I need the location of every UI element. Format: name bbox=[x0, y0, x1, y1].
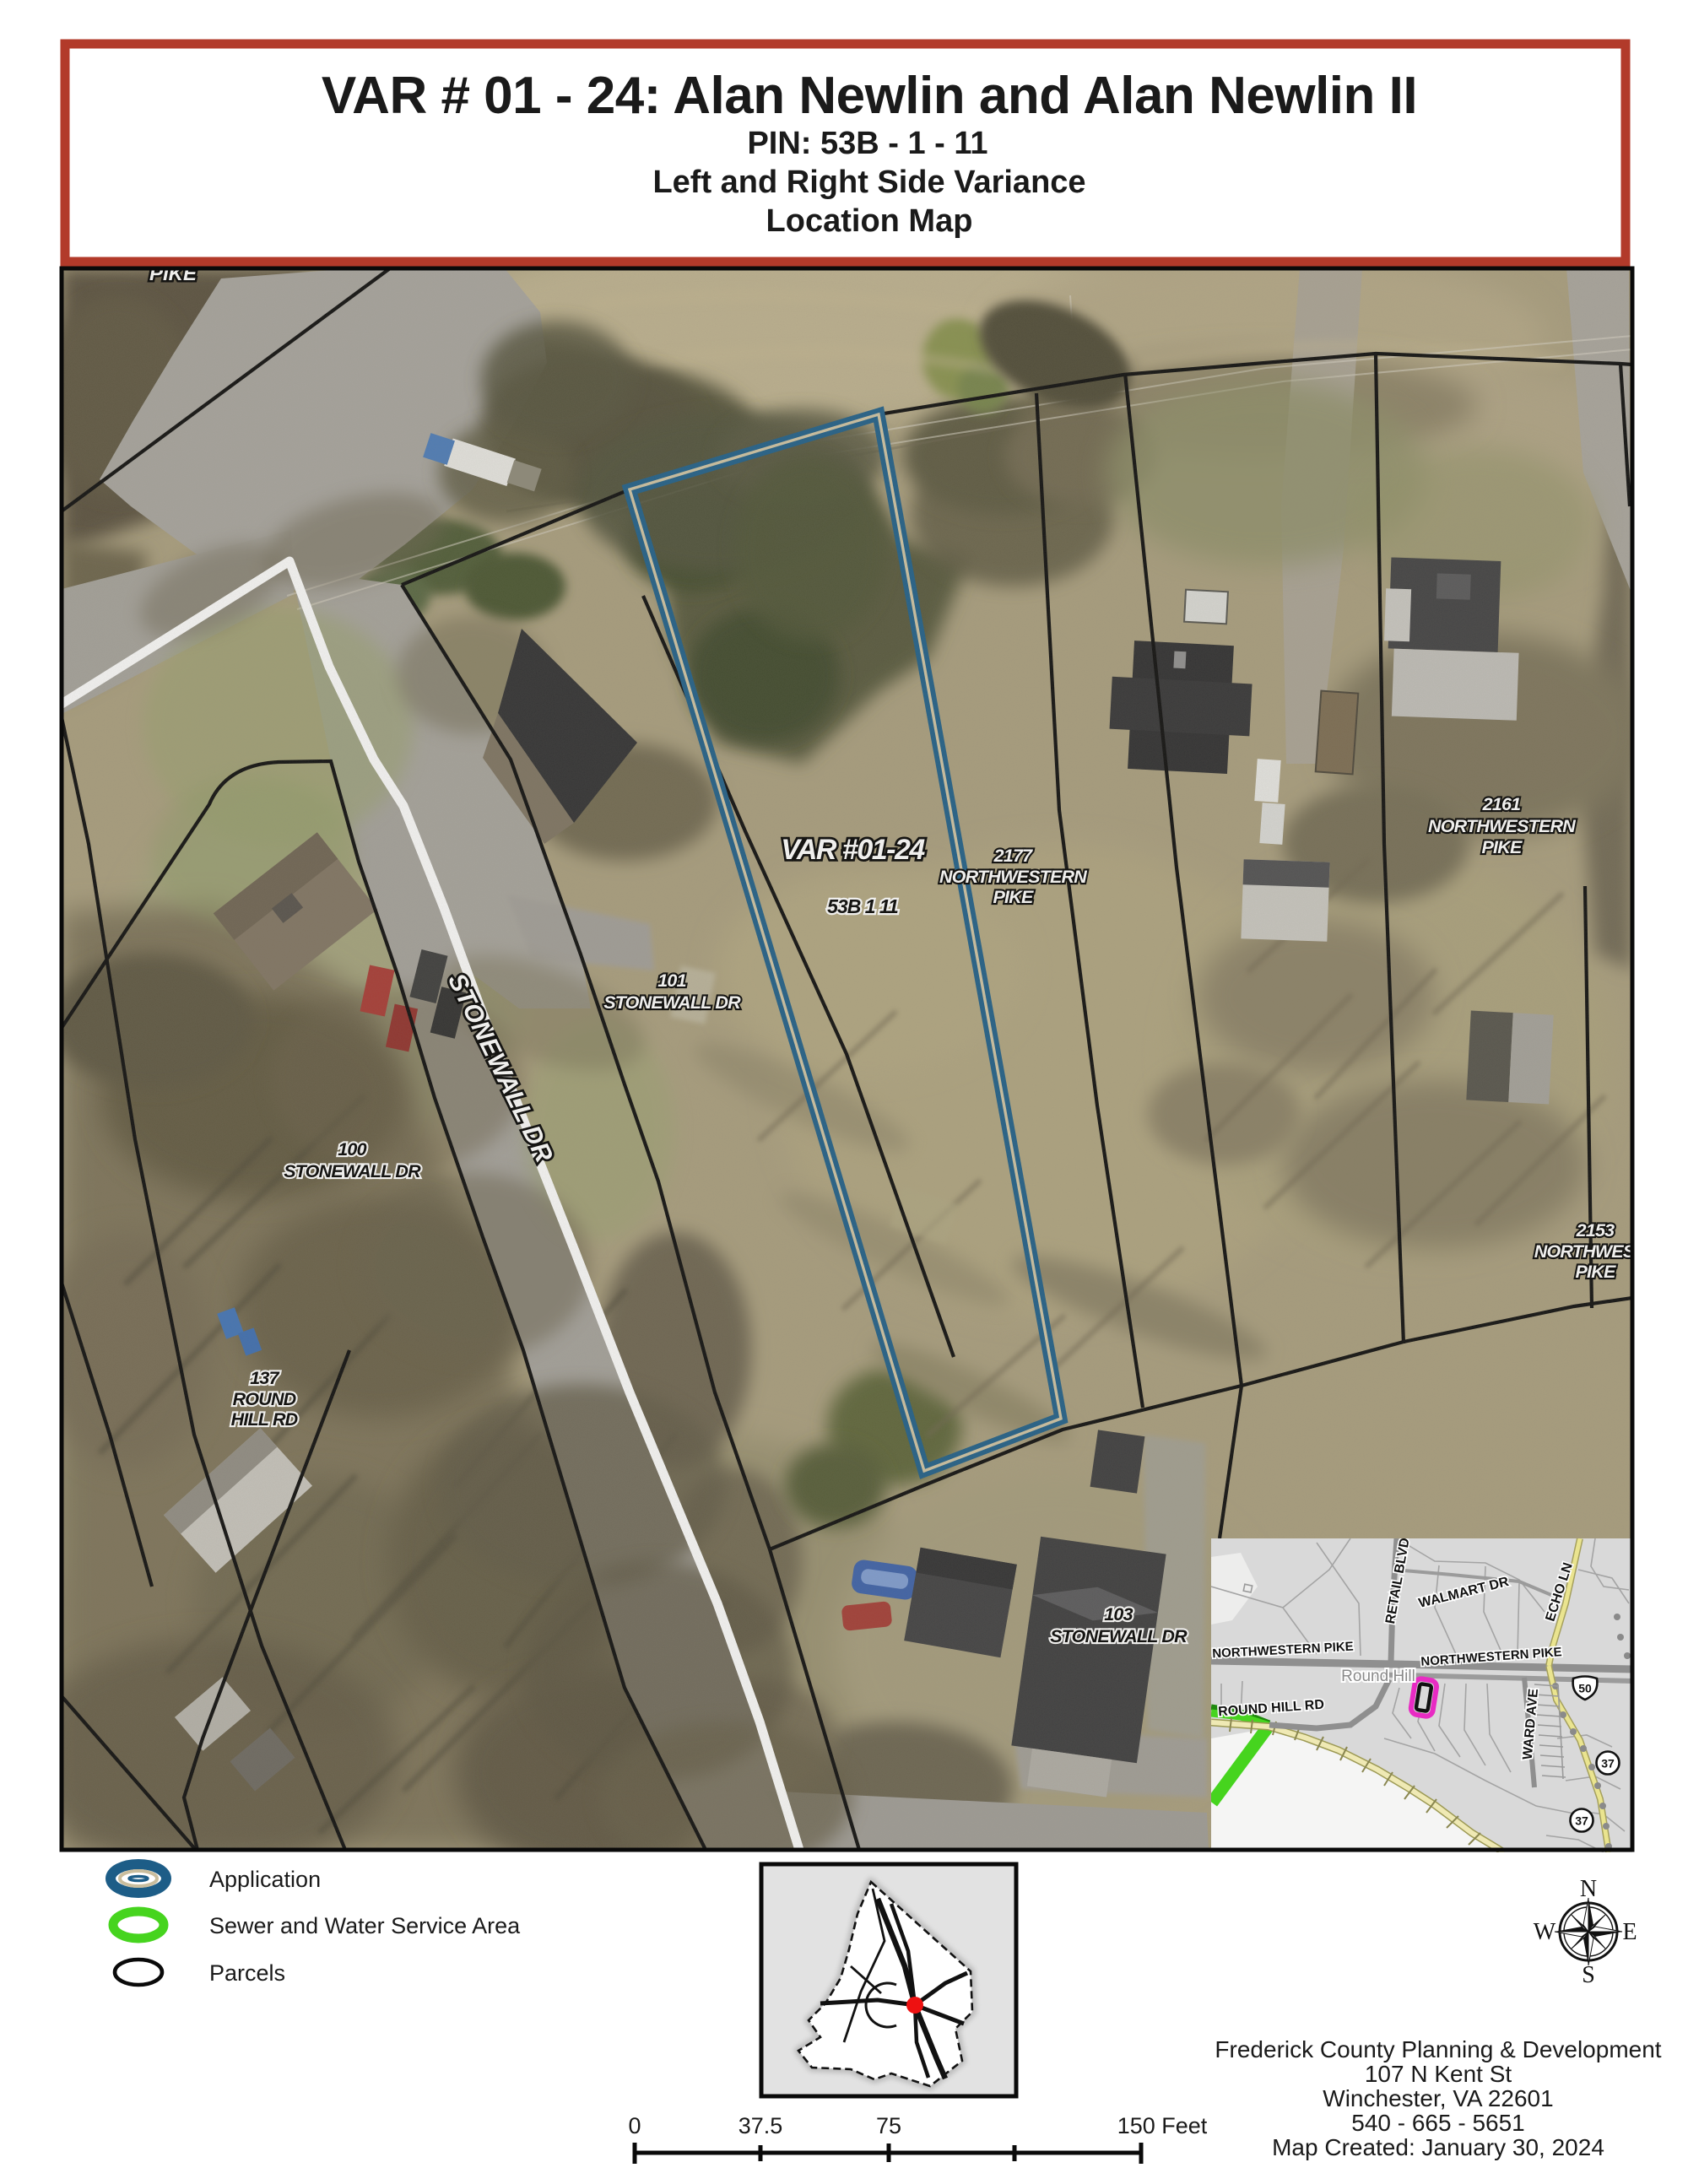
svg-text:Round Hill: Round Hill bbox=[1341, 1668, 1415, 1685]
svg-text:S: S bbox=[1582, 1962, 1595, 1988]
svg-text:540 - 665 - 5651: 540 - 665 - 5651 bbox=[1351, 2110, 1525, 2136]
svg-text:150 Feet: 150 Feet bbox=[1117, 2113, 1208, 2138]
svg-text:Map Created: January 30, 2024: Map Created: January 30, 2024 bbox=[1272, 2134, 1604, 2160]
svg-text:37: 37 bbox=[1575, 1814, 1588, 1828]
svg-text:PIN: 53B - 1 - 11: PIN: 53B - 1 - 11 bbox=[747, 126, 987, 161]
svg-text:N: N bbox=[1580, 1876, 1597, 1902]
svg-text:Sewer and Water Service Area: Sewer and Water Service Area bbox=[209, 1913, 521, 1938]
svg-text:107 N Kent St: 107 N Kent St bbox=[1365, 2061, 1512, 2087]
svg-text:37: 37 bbox=[1601, 1757, 1615, 1770]
svg-text:Left and Right Side Variance: Left and Right Side Variance bbox=[652, 165, 1085, 200]
svg-text:0: 0 bbox=[628, 2113, 641, 2138]
svg-text:VAR # 01 - 24: Alan Newlin and: VAR # 01 - 24: Alan Newlin and Alan Newl… bbox=[322, 67, 1417, 125]
svg-text:Application: Application bbox=[209, 1867, 321, 1892]
svg-text:Parcels: Parcels bbox=[209, 1960, 285, 1986]
svg-text:E: E bbox=[1622, 1919, 1637, 1945]
svg-text:Location Map: Location Map bbox=[766, 203, 973, 239]
svg-text:37.5: 37.5 bbox=[738, 2113, 783, 2138]
svg-text:W: W bbox=[1534, 1919, 1556, 1945]
svg-text:Winchester, VA 22601: Winchester, VA 22601 bbox=[1323, 2085, 1553, 2111]
svg-text:50: 50 bbox=[1578, 1682, 1592, 1695]
svg-text:Frederick County Planning & De: Frederick County Planning & Development bbox=[1215, 2036, 1661, 2062]
svg-text:75: 75 bbox=[876, 2113, 901, 2138]
